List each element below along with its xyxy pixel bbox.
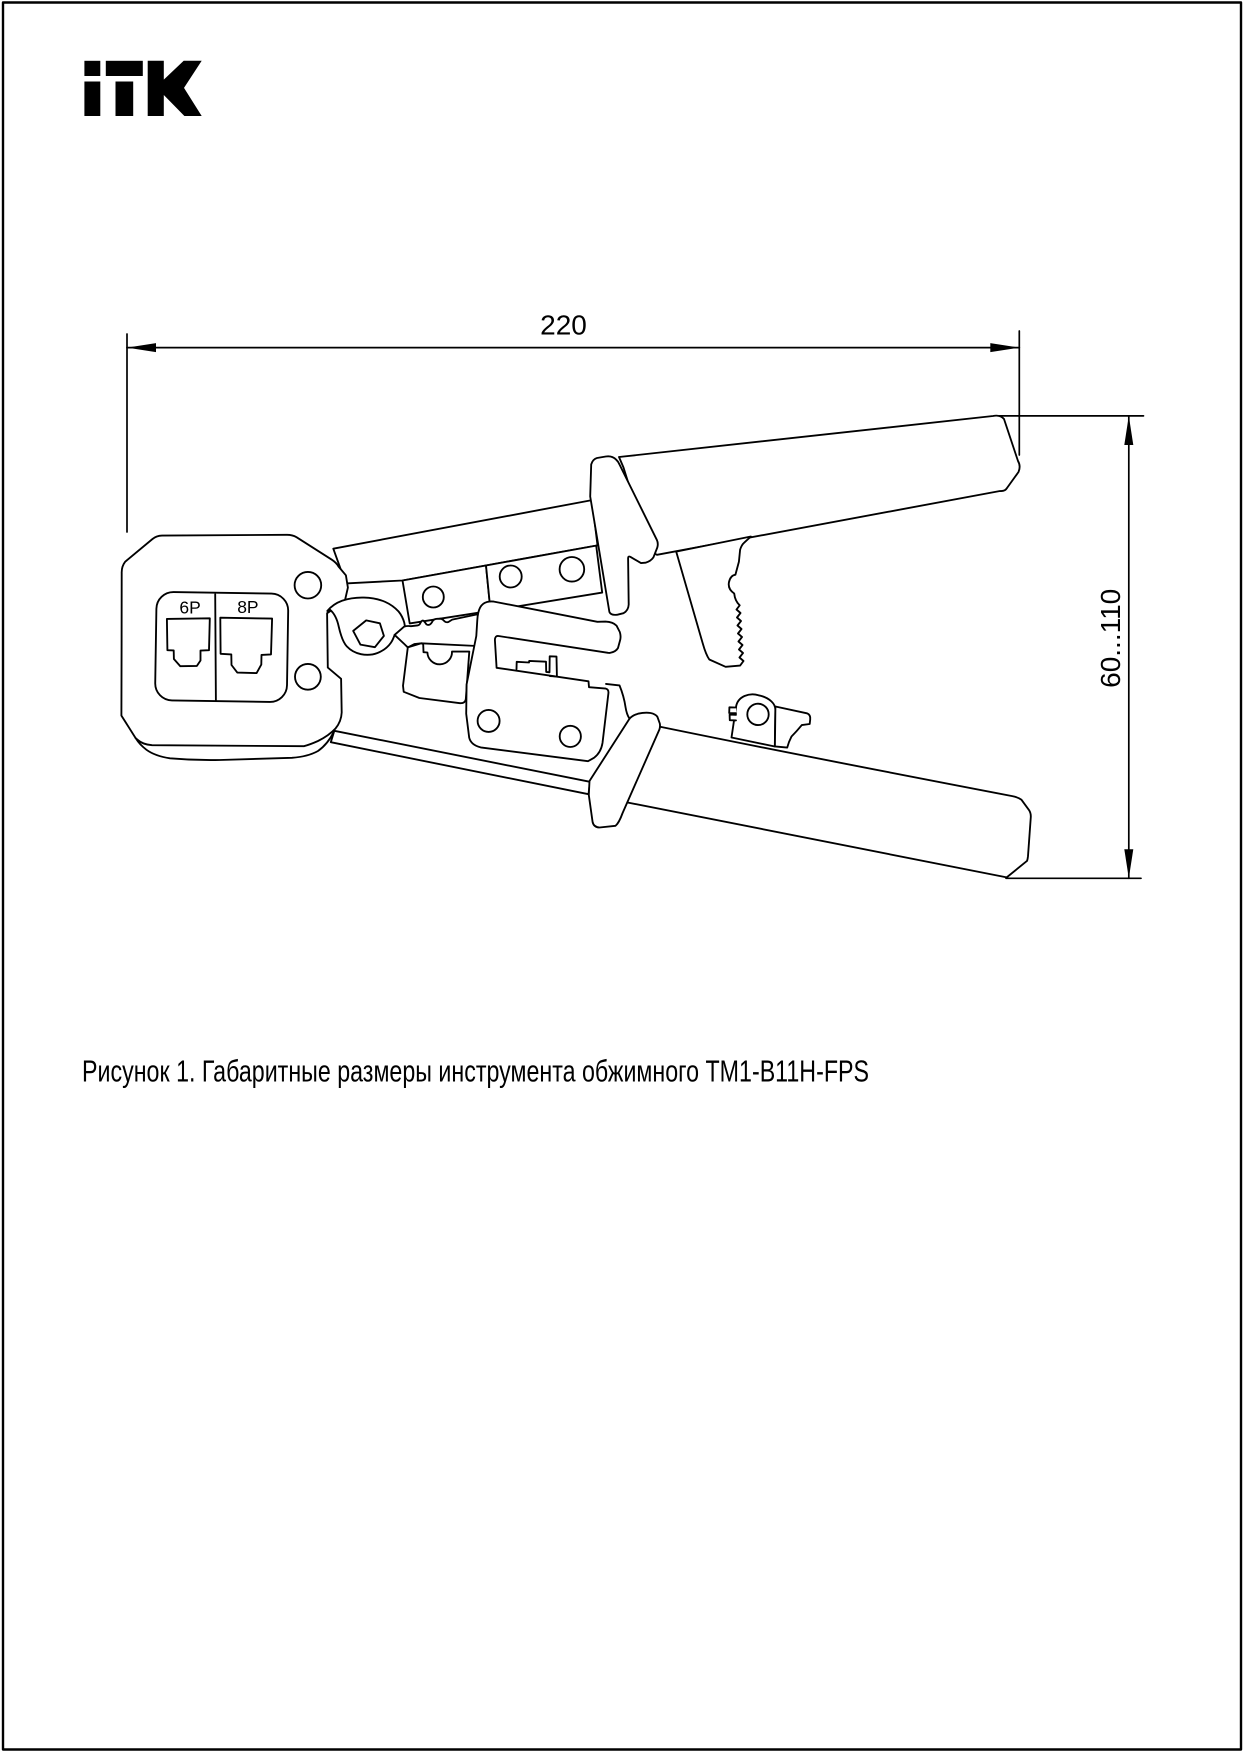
svg-text:8P: 8P xyxy=(237,597,258,617)
svg-text:60...110: 60...110 xyxy=(1095,589,1126,688)
svg-text:Рисунок 1. Габаритные размеры: Рисунок 1. Габаритные размеры инструмент… xyxy=(82,1056,869,1089)
svg-text:220: 220 xyxy=(540,310,587,341)
svg-text:6P: 6P xyxy=(179,598,200,618)
